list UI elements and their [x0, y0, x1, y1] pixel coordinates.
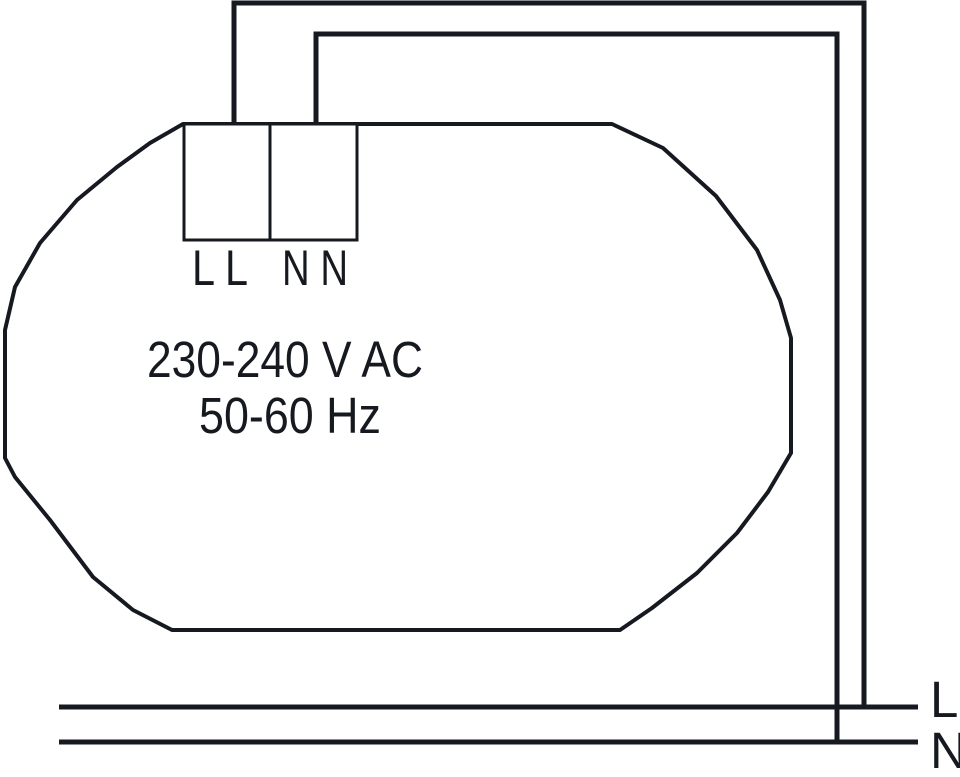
device-voltage-label: 230-240 V AC: [147, 331, 423, 388]
terminal-box-live: [184, 124, 270, 240]
device-frequency-label: 50-60 Hz: [199, 387, 381, 444]
terminal-label-live: L L: [192, 240, 248, 296]
wiring-diagram-page: L L N N 230-240 V AC 50-60 Hz L N: [0, 0, 960, 777]
terminal-label-neutral: N N: [282, 240, 348, 296]
mains-neutral-label: N: [930, 722, 960, 777]
power-wiring-diagram: L L N N 230-240 V AC 50-60 Hz L N: [0, 0, 960, 777]
terminal-box-neutral: [270, 124, 357, 240]
mains-live-label: L: [930, 671, 958, 728]
